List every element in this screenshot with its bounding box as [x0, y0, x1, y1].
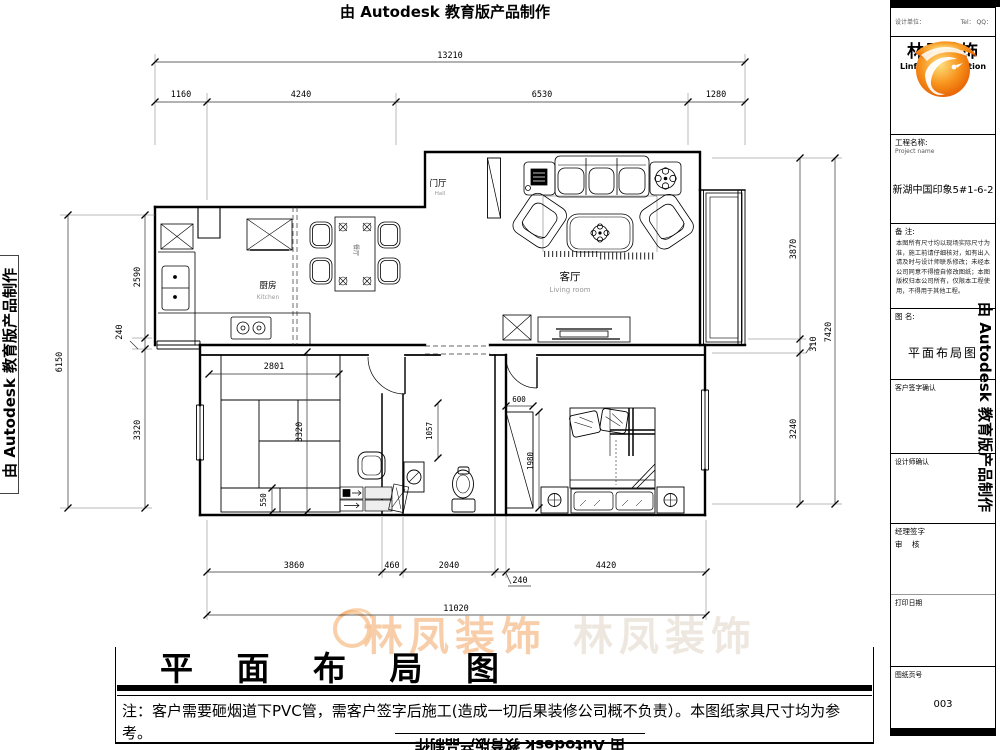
tb-header-row: 设计单位： Tel： QQ：: [891, 8, 995, 36]
dim-top-2: 4240: [291, 90, 311, 100]
dim-bottom-4: 240: [512, 576, 527, 586]
drawing-title: 平 面 布 局 图: [160, 642, 515, 690]
tb-logo-section: 林凤装饰 Linfeng Decoration: [891, 36, 995, 134]
dimension-lines: [68, 62, 835, 615]
laundry-units: [340, 484, 409, 513]
dim-left-total: 6150: [55, 352, 65, 372]
entry-door: [488, 158, 501, 218]
bed-bench: [571, 489, 655, 513]
dim-top-1: 1160: [171, 90, 191, 100]
dimension-ticks: [65, 59, 839, 619]
dim-wardrobe-w: 600: [512, 395, 526, 404]
autodesk-banner-right: 由 Autodesk 教育版产品制作: [978, 277, 996, 537]
room-label-living: 客厅: [560, 270, 581, 283]
autodesk-banner-top: 由 Autodesk 教育版产品制作: [0, 1, 890, 22]
tatami-door: [368, 357, 405, 394]
tb-project-value: 新湖中国印象5#1-6-2: [891, 181, 995, 196]
flue-cabinet: [247, 219, 292, 250]
tb-remark-label: 备 注:: [891, 224, 995, 237]
armchair-right: [636, 191, 697, 253]
room-label-living-sub: Living room: [549, 286, 590, 294]
tv-cabinet: [538, 317, 630, 342]
dim-wardrobe-h: 1980: [526, 451, 535, 470]
watermark-text-faint: 林凤装饰: [573, 614, 757, 660]
kitchen-furniture: [158, 219, 310, 345]
footer-border-right: [873, 647, 874, 743]
walls: [155, 152, 745, 515]
side-table-right: [650, 162, 681, 195]
tatami-platform: [221, 355, 340, 488]
dim-tatami-h: 3320: [295, 422, 305, 442]
tb-page-label: 图纸页号: [891, 667, 995, 679]
dim-tatami-w: 2801: [264, 362, 284, 372]
title-rule-thick: [117, 685, 872, 691]
autodesk-banner-left: 由 Autodesk 教育版产品制作: [0, 268, 17, 478]
dim-bottom-2: 460: [384, 561, 399, 571]
dim-bath: 1057: [425, 422, 434, 440]
dim-top-4: 1280: [706, 90, 726, 100]
dim-left-3: 3320: [133, 420, 143, 440]
tb-tel: Tel： QQ：: [961, 17, 992, 26]
tb-print-date-section: 打印日期: [891, 594, 995, 666]
armchair-left: [509, 190, 570, 252]
drawing-sheet: 林凤装饰 林凤装饰: [0, 0, 1000, 750]
side-table-left: [524, 162, 555, 195]
tb-print-label: 打印日期: [891, 595, 995, 607]
dim-bottom-1: 3860: [284, 561, 304, 571]
room-label-entry-sub: Hall: [435, 191, 446, 197]
dim-right-total: 7420: [824, 322, 834, 342]
coffee-table: [567, 214, 633, 252]
tb-page-section: 图纸页号 003: [891, 666, 995, 729]
dim-cabinet: 550: [259, 493, 268, 507]
dim-right-3: 3240: [789, 419, 799, 439]
nightstand-left: [541, 487, 568, 513]
bathroom: [404, 462, 475, 512]
dashed-lines: [293, 207, 490, 354]
tb-project-label: 工程名称:: [891, 135, 995, 148]
room-labels: 门厅 Hall 厨房 Kitchen 客厅 Living room 餐厅: [257, 178, 591, 301]
tb-project-section: 工程名称: Project name 新湖中国印象5#1-6-2: [891, 134, 995, 223]
dim-top-total: 13210: [437, 51, 463, 61]
dim-bottom-3: 2040: [439, 561, 459, 571]
tatami-cabinet: [221, 488, 340, 512]
toilet: [452, 467, 475, 512]
bed: [569, 408, 655, 488]
room-label-entry: 门厅: [429, 178, 447, 189]
footer-border-left: [115, 647, 116, 743]
tv-speaker-box: [503, 315, 531, 340]
extension-lines: [60, 54, 842, 620]
floor-plan-canvas: 林凤装饰 林凤装饰: [0, 0, 1000, 750]
dim-bottom-5: 4420: [596, 561, 616, 571]
stove: [231, 317, 271, 339]
title-rule-thin: [117, 695, 872, 696]
room-label-dining: 餐厅: [352, 244, 360, 256]
tb-design-unit: 设计单位：: [895, 17, 925, 26]
washing-machine: [404, 462, 424, 492]
bedroom-door: [506, 357, 537, 388]
sofa: [555, 156, 649, 197]
tb-page-value: 003: [891, 699, 995, 710]
room-label-kitchen-sub: Kitchen: [257, 294, 280, 301]
title-block-bottom-bar: [891, 728, 995, 735]
tb-project-sub: Project name: [891, 148, 995, 155]
doors: [368, 158, 537, 394]
dimension-labels: 13210 1160 4240 6530 1280 6150 2590 240 …: [55, 51, 834, 614]
dim-left-1: 2590: [133, 267, 143, 287]
dim-right-2: 310: [809, 336, 819, 351]
nightstand-right: [657, 487, 684, 513]
linfeng-logo-icon: [891, 37, 995, 99]
tatami-room: [221, 355, 409, 513]
dim-top-3: 6530: [532, 90, 552, 100]
dim-right-1: 3870: [789, 239, 799, 259]
tb-audit-label: 审 核: [891, 537, 995, 550]
drawing-note: 注：客户需要砸烟道下PVC管，需客户签字后施工(造成一切后果装修公司概不负责）。…: [122, 701, 870, 745]
living-furniture: [503, 156, 697, 342]
dim-bottom-total: 11020: [443, 604, 469, 614]
stool: [358, 452, 385, 479]
sink: [162, 266, 189, 310]
room-label-kitchen: 厨房: [259, 280, 276, 291]
dim-left-2: 240: [115, 324, 125, 339]
title-block-top-bar: [890, 0, 1000, 7]
